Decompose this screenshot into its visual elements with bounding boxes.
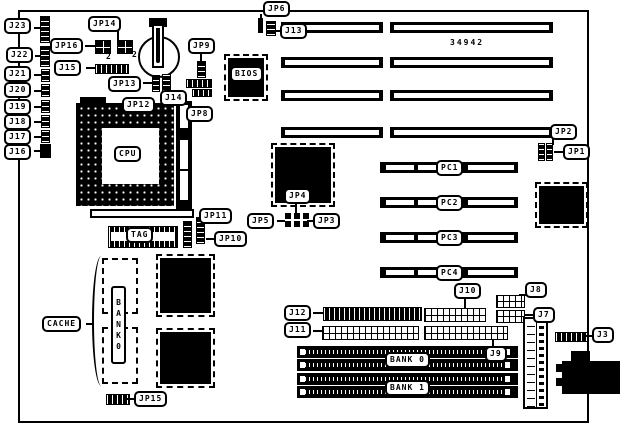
jumper-jp6 [258, 18, 263, 33]
regulator-slot-3 [180, 171, 188, 200]
connector-label-j16: J16 [4, 144, 31, 160]
header-j12 [323, 307, 422, 321]
pointer-j15 [86, 67, 95, 69]
pointer-jp1 [554, 151, 563, 153]
jumper-jp1-b [546, 143, 553, 161]
jumper-label-jp10: JP10 [214, 231, 247, 247]
qfp-chip-1 [160, 258, 211, 313]
jumper-label-jp1: JP1 [563, 144, 590, 160]
pointer-cache [86, 323, 93, 325]
connector-label-j22: J22 [6, 47, 33, 63]
connector-j19 [41, 100, 50, 113]
jumper-label-jp5: JP5 [247, 213, 274, 229]
jp16-pin2-marker: 2 [106, 52, 111, 61]
connector-label-j20: J20 [4, 82, 31, 98]
pointer-jp5 [277, 220, 285, 222]
connector-label-j19: J19 [4, 99, 31, 115]
header-j11 [322, 326, 419, 340]
connector-j20 [41, 84, 50, 97]
connector-j17 [41, 130, 50, 143]
keyboard-connector-pin-1 [556, 364, 563, 372]
pointer-j18 [34, 121, 42, 123]
connector-j18 [41, 115, 50, 128]
qfp-chip-2 [160, 332, 211, 384]
jumper-label-jp6: JP6 [263, 1, 290, 17]
pointer-j21 [34, 74, 42, 76]
header-j14 [186, 79, 212, 88]
jumper-jp10 [183, 221, 192, 248]
connector-j22 [40, 46, 50, 67]
pointer-j11 [313, 330, 323, 332]
pointer-j17 [34, 136, 42, 138]
cache-label: CACHE [42, 316, 81, 332]
jumper-label-jp13: JP13 [108, 76, 141, 92]
header-j3 [555, 332, 589, 342]
connector-label-j13: J13 [280, 23, 307, 39]
pointer-j12 [313, 312, 323, 314]
isa-slot-2-long [390, 57, 553, 68]
connector-label-j17: J17 [4, 129, 31, 145]
board-number: 34942 [450, 38, 484, 47]
jumper-label-jp4: JP4 [284, 188, 311, 204]
header-j9 [424, 326, 508, 340]
jumper-label-jp2: JP2 [550, 124, 577, 140]
pci-slot-label-pc1: PC1 [436, 160, 463, 176]
header-j10 [424, 308, 486, 322]
connector-label-j23: J23 [4, 18, 31, 34]
cache-brace [92, 256, 104, 386]
isa-slot-1-long [390, 22, 553, 33]
jumper-label-jp9: JP9 [188, 38, 215, 54]
jumper-label-jp12: JP12 [122, 97, 155, 113]
connector-label-j10: J10 [454, 283, 481, 299]
connector-label-j11: J11 [284, 322, 311, 338]
jumper-label-jp14: JP14 [88, 16, 121, 32]
battery-clip-pin [156, 28, 160, 63]
pci-slot-label-pc2: PC2 [436, 195, 463, 211]
header-j7 [496, 310, 525, 323]
pci-slot-label-pc4: PC4 [436, 265, 463, 281]
connector-label-j12: J12 [284, 305, 311, 321]
pointer-j23 [34, 27, 41, 29]
jumper-jp9 [197, 61, 206, 78]
connector-j23 [40, 16, 50, 43]
bios-chip-label: BIOS [230, 66, 263, 82]
connector-label-j18: J18 [4, 114, 31, 130]
jumper-jp1-a [538, 143, 545, 161]
keyboard-connector-body [562, 361, 620, 394]
connector-label-j3: J3 [592, 327, 614, 343]
connector-j16 [40, 144, 51, 158]
pointer-j20 [34, 90, 42, 92]
qfp-chip-4 [539, 186, 584, 224]
pointer-jp4 [295, 203, 297, 213]
header-jp12 [192, 89, 212, 97]
connector-label-j14: J14 [160, 90, 187, 106]
cpu-label: CPU [114, 146, 141, 162]
isa-slot-3-long [390, 90, 553, 101]
memory-bank1-label: BANK 1 [385, 380, 430, 396]
isa-slot-2-short [281, 57, 383, 68]
connector-label-j8: J8 [525, 282, 547, 298]
header-j15 [95, 64, 129, 74]
jumper-label-jp11: JP11 [199, 208, 232, 224]
connector-label-j21: J21 [4, 66, 31, 82]
regulator-slot-2 [180, 140, 188, 169]
connector-label-j7: J7 [533, 307, 555, 323]
connector-label-j9: J9 [485, 346, 507, 362]
pointer-j16 [34, 150, 41, 152]
isa-slot-4-short [281, 127, 383, 138]
isa-slot-4-long [390, 127, 553, 138]
pointer-jp16 [85, 45, 95, 47]
motherboard-diagram: J23 J22 J21 J20 J19 J18 J17 J16 JP14 JP1… [0, 0, 620, 425]
pointer-j22 [35, 55, 41, 57]
pointer-jp9 [200, 53, 202, 61]
pointer-jp13 [143, 82, 152, 84]
memory-bank0-label: BANK 0 [385, 352, 430, 368]
jumper-label-jp3: JP3 [313, 213, 340, 229]
pointer-j10 [464, 298, 466, 308]
header-j8 [496, 295, 525, 308]
keyboard-connector-pin-2 [556, 378, 563, 386]
jumper-jp13-a [152, 75, 160, 92]
pointer-jp6 [260, 14, 262, 19]
connector-j21 [41, 69, 50, 82]
connector-j7-vertical [523, 317, 548, 409]
pointer-j19 [34, 106, 42, 108]
jumper-label-jp8: JP8 [186, 106, 213, 122]
cpu-socket-lever [90, 209, 194, 218]
connector-j13 [266, 21, 276, 36]
jumper-label-jp15: JP15 [134, 391, 167, 407]
tag-chip-label: TAG [126, 227, 153, 243]
jumper-block-jp14 [117, 40, 133, 54]
jp14-pin2-marker: 2 [132, 50, 137, 59]
connector-label-j15: J15 [54, 60, 81, 76]
pointer-jp14 [117, 31, 119, 40]
isa-slot-3-short [281, 90, 383, 101]
pci-slot-label-pc3: PC3 [436, 230, 463, 246]
cache-bank0-vertical-label: BANK0 [111, 286, 126, 364]
jumper-label-jp16: JP16 [50, 38, 83, 54]
